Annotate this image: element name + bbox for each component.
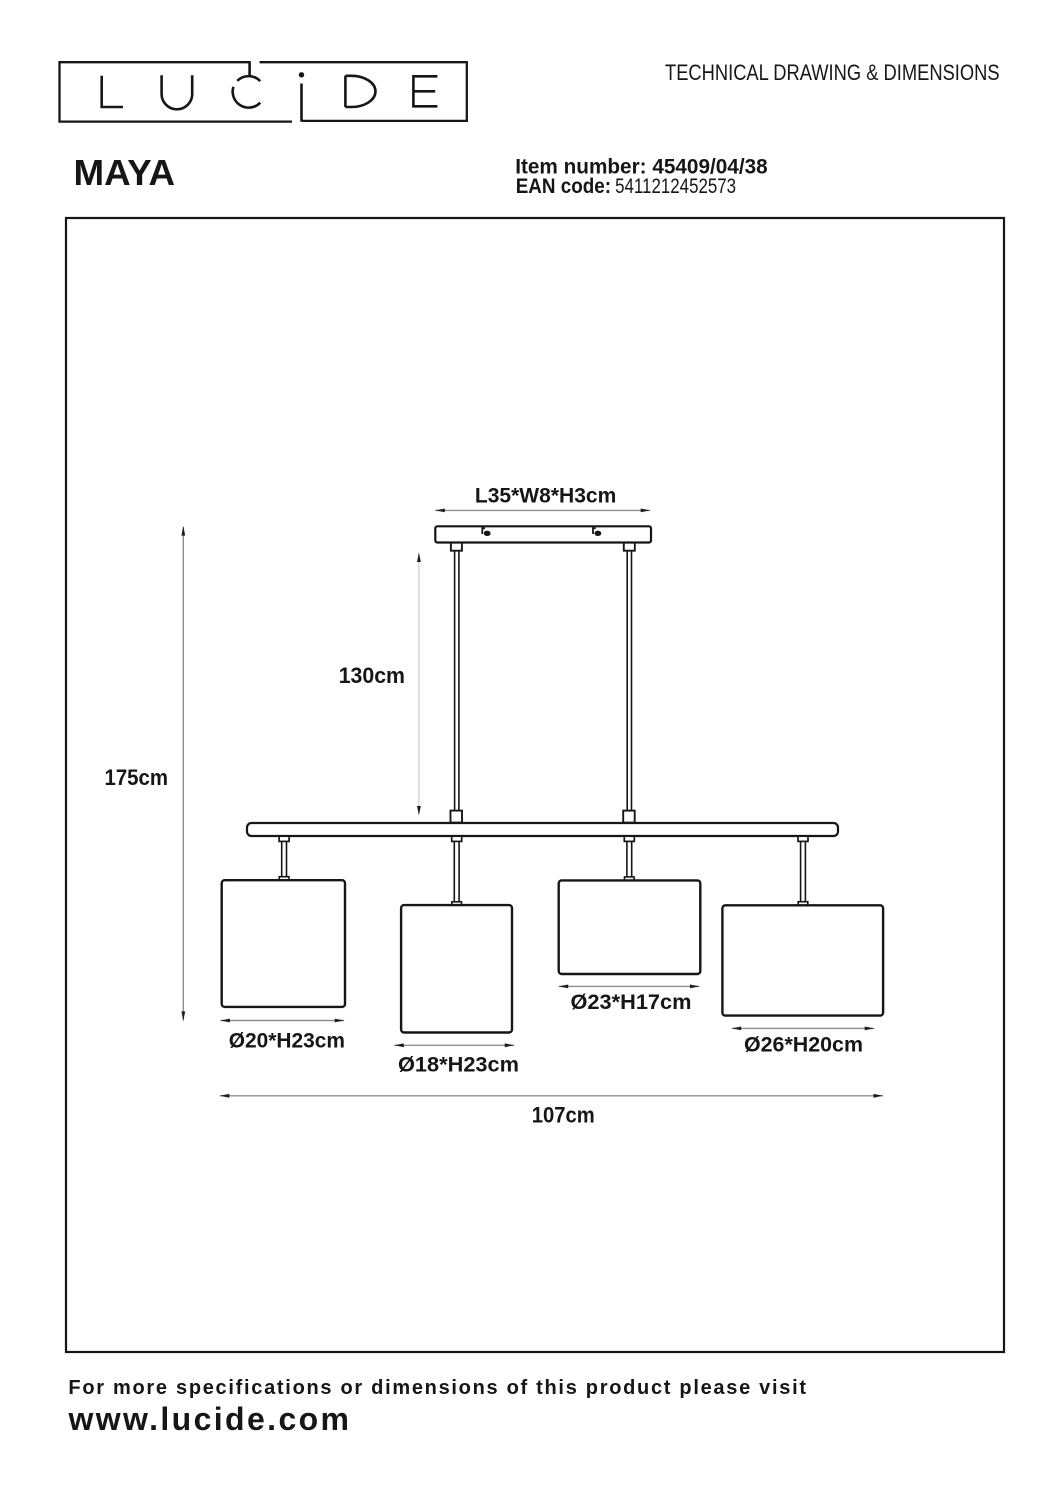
svg-text:MAYA: MAYA bbox=[74, 152, 176, 193]
svg-text:130cm: 130cm bbox=[339, 663, 405, 688]
svg-text:www.lucide.com: www.lucide.com bbox=[68, 1401, 350, 1437]
svg-text:Ø26*H20cm: Ø26*H20cm bbox=[744, 1033, 863, 1056]
svg-text:5411212452573: 5411212452573 bbox=[615, 174, 736, 198]
svg-text:175cm: 175cm bbox=[105, 765, 169, 790]
svg-text:L35*W8*H3cm: L35*W8*H3cm bbox=[475, 484, 616, 508]
svg-text:TECHNICAL DRAWING & DIMENSIONS: TECHNICAL DRAWING & DIMENSIONS bbox=[665, 60, 1000, 85]
svg-text:Ø23*H17cm: Ø23*H17cm bbox=[571, 991, 692, 1014]
svg-text:EAN code:: EAN code: bbox=[516, 175, 611, 198]
svg-text:107cm: 107cm bbox=[532, 1103, 595, 1128]
svg-text:Ø18*H23cm: Ø18*H23cm bbox=[398, 1054, 519, 1077]
svg-text:Ø20*H23cm: Ø20*H23cm bbox=[229, 1030, 345, 1053]
